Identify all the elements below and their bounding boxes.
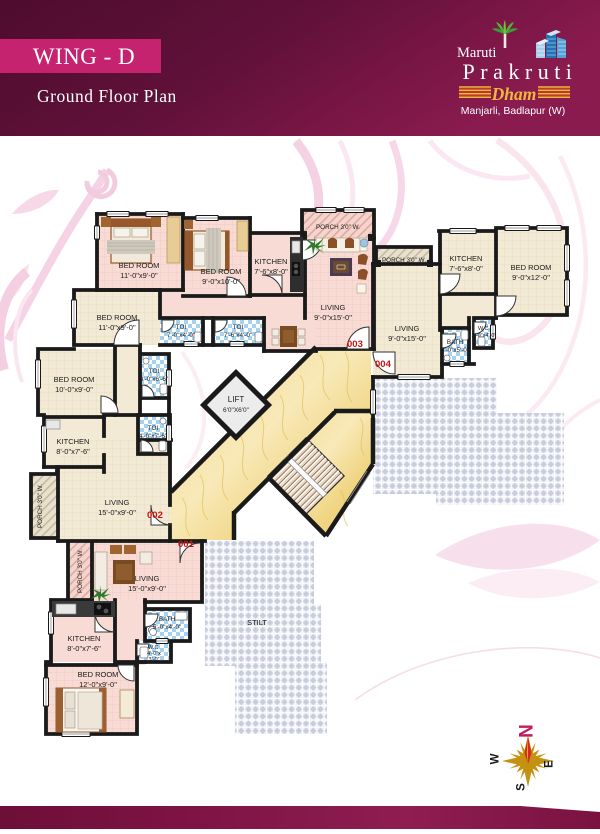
svg-text:KITCHEN: KITCHEN [255, 257, 288, 266]
svg-text:WING - D: WING - D [33, 44, 135, 69]
svg-text:PORCH 3'0" W.: PORCH 3'0" W. [382, 257, 426, 264]
svg-text:TOI: TOI [148, 425, 159, 432]
svg-text:9'-0"x10'-0": 9'-0"x10'-0" [202, 277, 240, 286]
svg-text:TOI: TOI [233, 324, 244, 331]
svg-text:BED ROOM: BED ROOM [511, 263, 552, 272]
svg-text:W.C.: W.C. [478, 326, 490, 332]
svg-text:4'-0"x7'-6": 4'-0"x7'-6" [139, 433, 167, 440]
svg-text:STILT: STILT [247, 618, 267, 627]
svg-text:KITCHEN: KITCHEN [450, 254, 483, 263]
svg-text:Manjarli, Badlapur (W): Manjarli, Badlapur (W) [461, 105, 565, 117]
svg-text:7'-6"x4'-0": 7'-6"x4'-0" [224, 332, 252, 339]
svg-text:3'-0": 3'-0" [149, 657, 160, 663]
svg-text:8'-0"x7'-6": 8'-0"x7'-6" [67, 644, 101, 653]
svg-text:15'-0"x9'-0": 15'-0"x9'-0" [98, 508, 136, 517]
svg-text:KITCHEN: KITCHEN [68, 634, 101, 643]
svg-text:4'-0"x5'-0": 4'-0"x5'-0" [441, 347, 469, 354]
svg-text:Ground Floor Plan: Ground Floor Plan [37, 86, 177, 106]
svg-text:12'-0"x9'-0": 12'-0"x9'-0" [79, 680, 117, 689]
svg-text:S: S [516, 783, 528, 791]
svg-text:BATH: BATH [447, 339, 464, 346]
svg-text:6'0"X6'0": 6'0"X6'0" [223, 407, 250, 414]
svg-text:LIVING: LIVING [395, 324, 420, 333]
svg-text:TOI: TOI [176, 324, 187, 331]
svg-text:4'-0"x6'-6": 4'-0"x6'-6" [140, 376, 168, 383]
svg-text:002: 002 [147, 510, 163, 521]
svg-text:E: E [544, 760, 556, 768]
svg-text:003: 003 [347, 339, 363, 350]
svg-text:9'-0"x15'-0": 9'-0"x15'-0" [314, 313, 352, 322]
svg-text:BED ROOM: BED ROOM [201, 267, 242, 276]
svg-text:3'-0"x4'-0": 3'-0"x4'-0" [472, 333, 497, 339]
svg-text:KITCHEN: KITCHEN [57, 437, 90, 446]
svg-text:BED ROOM: BED ROOM [119, 261, 160, 270]
svg-text:PORCH 3'0" W.: PORCH 3'0" W. [37, 484, 44, 528]
svg-text:LIVING: LIVING [105, 498, 130, 507]
svg-text:LIVING: LIVING [321, 303, 346, 312]
svg-text:10'-0"x9'-0": 10'-0"x9'-0" [55, 385, 93, 394]
svg-text:9'-0"x12'-0": 9'-0"x12'-0" [512, 273, 550, 282]
svg-text:TOI: TOI [149, 368, 160, 375]
svg-text:W: W [490, 753, 502, 764]
svg-text:7'-0"x4'-0": 7'-0"x4'-0" [167, 332, 195, 339]
svg-text:15'-0"x9'-0": 15'-0"x9'-0" [128, 584, 166, 593]
svg-text:Prakruti: Prakruti [463, 59, 578, 84]
svg-text:BED ROOM: BED ROOM [54, 375, 95, 384]
svg-text:BED ROOM: BED ROOM [78, 670, 119, 679]
svg-text:11'-0"x9'-0": 11'-0"x9'-0" [98, 323, 136, 332]
svg-text:LIVING: LIVING [135, 574, 160, 583]
svg-text:5'-0"x4'-0": 5'-0"x4'-0" [153, 624, 181, 631]
svg-text:004: 004 [375, 359, 392, 370]
svg-text:9'-0"x15'-0": 9'-0"x15'-0" [388, 334, 426, 343]
svg-text:7'-6"x8'-0": 7'-6"x8'-0" [449, 264, 483, 273]
svg-text:N: N [517, 724, 538, 738]
svg-text:BED ROOM: BED ROOM [97, 313, 138, 322]
svg-text:7'-6"x8'-0": 7'-6"x8'-0" [254, 267, 288, 276]
svg-text:001: 001 [178, 539, 195, 550]
svg-text:LIFT: LIFT [228, 395, 245, 404]
svg-text:PORCH 3'0" W.: PORCH 3'0" W. [316, 224, 360, 231]
svg-text:BATH: BATH [159, 616, 176, 623]
svg-text:8'-0"x7'-6": 8'-0"x7'-6" [56, 447, 90, 456]
svg-text:11'-0"x9'-0": 11'-0"x9'-0" [120, 271, 158, 280]
svg-text:PORCH 3'0" W.: PORCH 3'0" W. [77, 549, 84, 593]
svg-text:Dham: Dham [491, 84, 537, 104]
